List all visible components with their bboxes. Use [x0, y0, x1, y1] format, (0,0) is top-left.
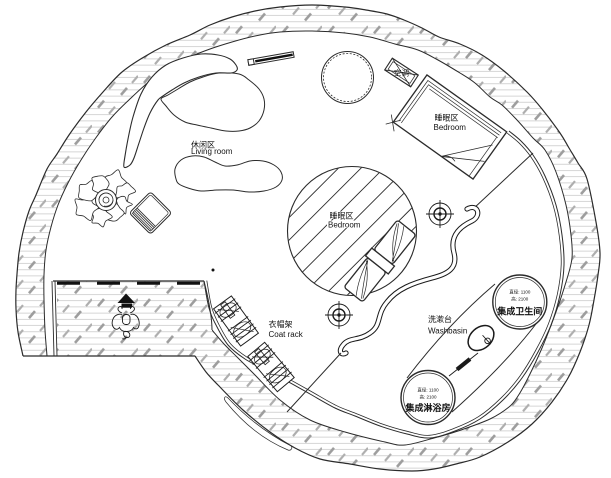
svg-text:Washbasin: Washbasin [428, 327, 467, 336]
svg-text:睡眠区: 睡眠区 [435, 114, 459, 123]
svg-text:Living room: Living room [191, 147, 233, 156]
svg-text:空调: 空调 [394, 68, 409, 78]
svg-text:Bedroom: Bedroom [328, 221, 361, 230]
svg-text:直径: 1100: 直径: 1100 [417, 387, 439, 393]
svg-text:直径: 1100: 直径: 1100 [509, 289, 531, 295]
svg-text:睡眠区: 睡眠区 [330, 212, 354, 221]
svg-text:集成淋浴房: 集成淋浴房 [404, 402, 450, 413]
svg-text:高: 2100: 高: 2100 [511, 296, 529, 303]
svg-text:衣帽架: 衣帽架 [269, 319, 293, 329]
svg-text:洗漱台: 洗漱台 [428, 314, 452, 324]
svg-text:集成卫生间: 集成卫生间 [496, 306, 542, 317]
svg-text:Bedroom: Bedroom [434, 123, 467, 132]
svg-text:高: 2100: 高: 2100 [419, 394, 437, 401]
svg-text:Coat rack: Coat rack [269, 330, 304, 339]
